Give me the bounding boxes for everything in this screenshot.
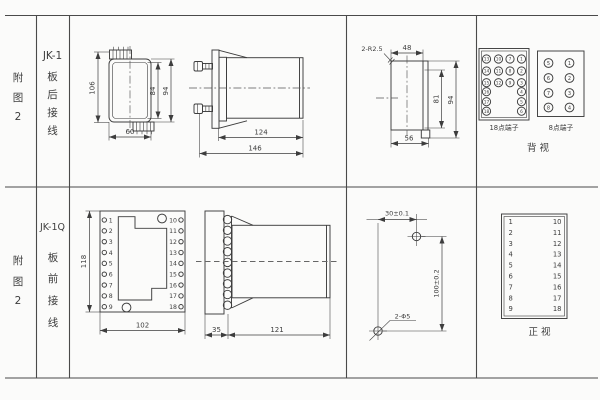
- table-cell: 3: [509, 240, 513, 248]
- terminal-number: 14: [169, 261, 177, 268]
- dim-total-length: 146: [248, 145, 262, 153]
- terminal-number: 14: [484, 69, 490, 75]
- table-cell: 7: [509, 283, 513, 291]
- terminal-number: 1: [568, 61, 571, 67]
- wiring-label-char: 线: [48, 316, 59, 329]
- front-view-label: 正 视: [528, 326, 551, 338]
- cutout-corner-radius-label: 2-R2.5: [361, 45, 382, 53]
- terminal-number: 6: [109, 272, 113, 279]
- table-cell: 17: [553, 294, 562, 302]
- dimension-drawing-canvas: 附 图 2 JK-1 板 后 接 线 106 84: [0, 0, 600, 400]
- terminal-number: 15: [484, 80, 490, 86]
- terminal-number: 6: [547, 76, 550, 82]
- terminal-number: 17: [169, 293, 177, 300]
- table-cell: 16: [553, 283, 562, 291]
- wiring-label-char: 线: [47, 124, 58, 137]
- terminal-hole: [102, 229, 106, 233]
- fig-label-char: 2: [15, 111, 22, 123]
- terminal-hole: [102, 261, 106, 265]
- terminal-number: 11: [169, 228, 177, 235]
- jk1q-drill-plan: 30±0.1 100±0.2 2-Φ5: [367, 210, 447, 341]
- terminal-hole: [179, 250, 183, 254]
- jk1-rear-terminals: 131071141182151293164175186 18点端子 516273…: [479, 49, 584, 155]
- dim-overall-height: 106: [89, 81, 97, 95]
- terminal-number: 1: [520, 57, 523, 63]
- dim-cutout-inner-height: 81: [432, 95, 440, 104]
- terminal-hole: [223, 237, 231, 245]
- terminal-number: 4: [568, 105, 571, 111]
- row2-sidebar: 附 图 2 JK-1Q 板 前 接 线: [13, 222, 65, 329]
- terminal-hole: [223, 226, 231, 234]
- row1-sidebar: 附 图 2 JK-1 板 后 接 线: [13, 50, 62, 137]
- model-label: JK-1: [42, 50, 62, 62]
- terminal-block-18-label: 18点端子: [489, 123, 518, 132]
- jk1q-side-view: 35 121: [196, 211, 338, 339]
- terminal-hole: [179, 305, 183, 309]
- terminal-number: 12: [496, 80, 502, 86]
- table-cell: 4: [509, 251, 513, 259]
- terminal-number: 7: [509, 57, 512, 63]
- terminal-hole: [179, 294, 183, 298]
- terminal-hole: [223, 301, 231, 309]
- table-cell: 11: [553, 229, 562, 237]
- terminal-number: 7: [109, 282, 113, 289]
- terminal-number: 13: [169, 250, 177, 257]
- dim-plate-height: 118: [80, 255, 88, 268]
- table-cell: 5: [509, 262, 513, 270]
- table-cell: 2: [509, 229, 513, 237]
- dim-plate-width: 102: [136, 322, 149, 330]
- terminal-number: 4: [520, 89, 523, 95]
- terminal-table-rows: 110211312413514615716817918: [509, 218, 562, 313]
- terminal-number: 11: [496, 69, 502, 75]
- jk1q-front-view: 110211312413514615716817918 118 102: [80, 211, 185, 335]
- dim-cutout-top-width: 48: [403, 44, 412, 52]
- terminal-number: 8: [509, 69, 512, 75]
- fig-label-char: 附: [13, 71, 24, 84]
- fig-label-char: 图: [13, 92, 24, 104]
- terminal-hole: [102, 272, 106, 276]
- fig-label-char: 2: [15, 295, 22, 307]
- dim-inner-height: 84: [149, 86, 157, 95]
- terminal-hole: [223, 290, 231, 298]
- table-cell: 14: [553, 262, 562, 270]
- manual-figure-page: 附 图 2 JK-1 板 后 接 线 106 84: [0, 0, 600, 400]
- dim-body-length: 124: [254, 129, 268, 137]
- terminal-number: 16: [484, 89, 490, 95]
- table-cell: 18: [553, 305, 562, 313]
- dim-outer-height: 94: [162, 86, 170, 95]
- wiring-label-char: 板: [47, 70, 58, 83]
- jk1-side-view: 124 146: [189, 50, 310, 158]
- terminal-number: 18: [169, 304, 177, 311]
- terminal-number: 13: [484, 57, 490, 63]
- fig-label-char: 附: [13, 254, 24, 267]
- terminal-number: 2: [109, 228, 113, 235]
- terminal-number: 2: [568, 76, 571, 82]
- wiring-label-char: 前: [48, 272, 59, 285]
- dim-plate-depth: 35: [212, 326, 221, 334]
- terminal-hole: [223, 280, 231, 288]
- terminal-hole: [102, 283, 106, 287]
- terminal-hole: [223, 215, 231, 223]
- terminal-block-8-label: 8点端子: [549, 123, 574, 132]
- terminal-hole: [223, 269, 231, 277]
- terminal-number: 10: [496, 57, 502, 63]
- dim-cutout-bottom-width: 56: [405, 135, 414, 143]
- drill-holes-label: 2-Φ5: [395, 313, 411, 321]
- terminal-hole: [179, 239, 183, 243]
- terminal-number: 2: [520, 69, 523, 75]
- table-cell: 1: [509, 218, 513, 226]
- terminal-number: 8: [547, 105, 550, 111]
- terminal-number: 4: [109, 250, 113, 257]
- wiring-label-char: 接: [47, 106, 58, 119]
- terminal-hole: [179, 229, 183, 233]
- terminal-number: 9: [109, 304, 113, 311]
- terminal-number: 18: [484, 109, 490, 115]
- jk1-panel-cutout: 2-R2.5 48 81 94 56: [361, 44, 459, 148]
- dim-cutout-outer-height: 94: [447, 95, 455, 104]
- terminal-hole: [179, 218, 183, 222]
- terminal-number: 5: [109, 261, 113, 268]
- terminal-block-18: 131071141182151293164175186: [482, 55, 525, 115]
- fig-label-char: 图: [13, 276, 24, 288]
- terminal-number: 5: [547, 61, 550, 67]
- terminal-number: 1: [109, 217, 113, 224]
- table-cell: 12: [553, 240, 562, 248]
- terminal-number: 6: [520, 109, 523, 115]
- terminal-hole: [102, 218, 106, 222]
- jk1-front-view: 106 84 94 60: [89, 46, 175, 141]
- terminal-number: 16: [169, 282, 177, 289]
- terminal-hole: [179, 261, 183, 265]
- terminal-block-8: 51627384: [544, 59, 574, 112]
- model-label: JK-1Q: [39, 222, 65, 233]
- wiring-label-char: 后: [47, 89, 58, 101]
- wiring-label-char: 板: [48, 251, 59, 264]
- terminal-hole: [223, 248, 231, 256]
- terminal-number: 7: [547, 91, 550, 97]
- dim-hole-h-spacing: 30±0.1: [385, 210, 409, 218]
- terminal-number: 3: [568, 91, 571, 97]
- terminal-number: 12: [169, 239, 177, 246]
- front-view-terminals: 110211312413514615716817918: [102, 217, 183, 311]
- wiring-label-char: 接: [48, 294, 59, 307]
- terminal-number: 3: [520, 80, 523, 86]
- terminal-hole: [223, 258, 231, 266]
- side-view-terminals: [223, 215, 231, 309]
- table-cell: 15: [553, 273, 562, 281]
- terminal-hole: [102, 239, 106, 243]
- table-cell: 10: [553, 218, 562, 226]
- terminal-hole: [102, 250, 106, 254]
- dim-width: 60: [126, 128, 135, 136]
- terminal-number: 10: [169, 217, 177, 224]
- jk1q-terminal-table: 110211312413514615716817918 正 视: [502, 214, 568, 338]
- terminal-number: 5: [520, 99, 523, 105]
- terminal-number: 9: [509, 80, 512, 86]
- dim-hole-v-spacing: 100±0.2: [433, 269, 441, 297]
- terminal-number: 17: [484, 99, 490, 105]
- terminal-hole: [102, 294, 106, 298]
- terminal-number: 8: [109, 293, 113, 300]
- dim-body-length: 121: [270, 326, 283, 334]
- terminal-hole: [179, 283, 183, 287]
- table-cell: 8: [509, 294, 513, 302]
- table-cell: 6: [509, 273, 513, 281]
- terminal-hole: [179, 272, 183, 276]
- terminal-hole: [102, 305, 106, 309]
- table-cell: 13: [553, 251, 562, 259]
- terminal-number: 15: [169, 272, 177, 279]
- terminal-number: 3: [109, 239, 113, 246]
- rear-view-label: 背 视: [527, 142, 550, 154]
- table-cell: 9: [509, 305, 513, 313]
